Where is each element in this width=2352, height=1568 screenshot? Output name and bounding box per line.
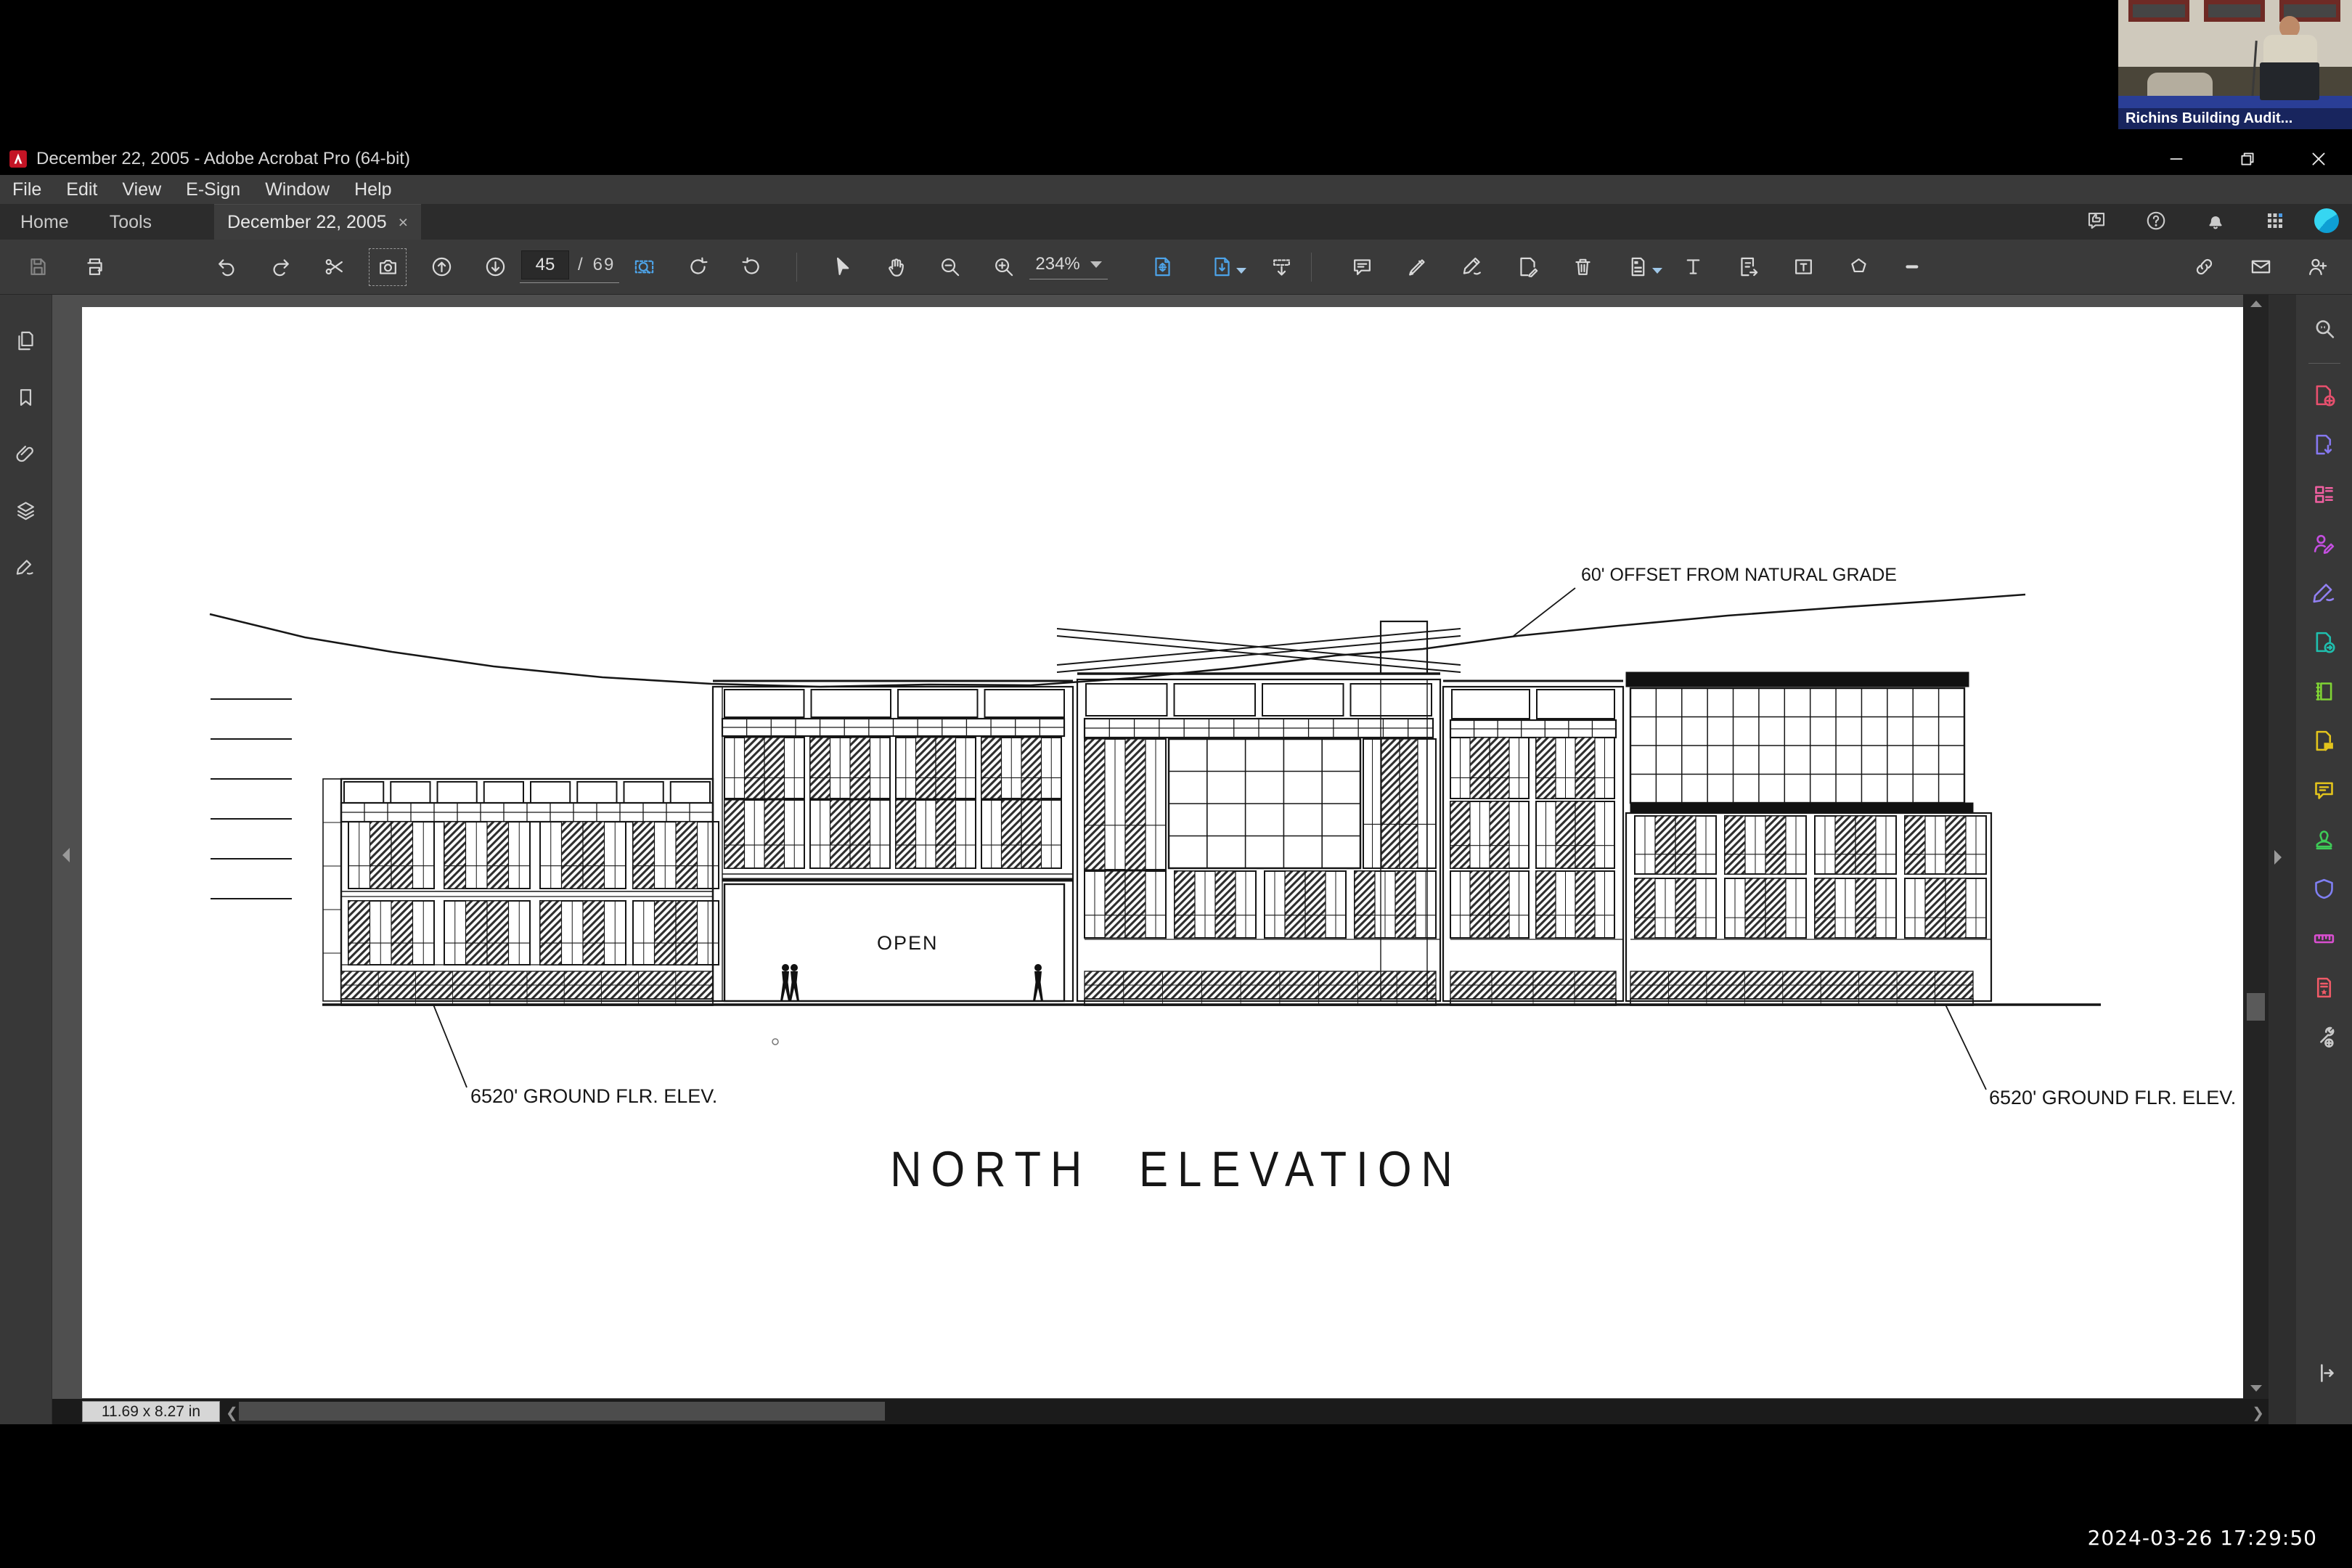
minimize-icon — [2167, 150, 2186, 168]
content-area: 60' OFFSET FROM NATURAL GRADE 6520' GROU… — [0, 295, 2352, 1424]
tab-document[interactable]: December 22, 2005 × — [214, 204, 421, 240]
dropdown-caret-icon — [1652, 268, 1662, 274]
measure-button[interactable] — [2308, 921, 2341, 955]
rotate-left-button[interactable] — [732, 248, 770, 286]
offset-annotation: 60' OFFSET FROM NATURAL GRADE — [1581, 565, 1897, 585]
restore-button[interactable] — [2229, 140, 2266, 178]
send-for-review-icon — [2312, 630, 2336, 654]
edit-text-button[interactable] — [1730, 248, 1768, 286]
tab-home[interactable]: Home — [0, 205, 89, 240]
add-user-icon — [2306, 256, 2329, 278]
print-icon — [83, 256, 106, 278]
add-user-button[interactable] — [2298, 248, 2336, 286]
right-panel-edge — [2269, 295, 2295, 1424]
tab-document-label: December 22, 2005 — [227, 212, 387, 233]
link-icon — [2193, 256, 2216, 278]
status-bar: 11.69 x 8.27 in ❮ ❯ — [52, 1399, 2269, 1424]
help-button[interactable] — [2137, 202, 2175, 240]
right-panel-collapse-handle[interactable] — [2274, 850, 2282, 865]
attachments-button[interactable] — [9, 437, 43, 470]
menu-item-edit[interactable]: Edit — [54, 179, 110, 200]
stamp-icon — [2312, 828, 2336, 852]
chair — [2147, 73, 2213, 97]
create-pdf-icon — [1211, 256, 1233, 278]
zoom-level: 234% — [1035, 254, 1079, 274]
zoom-caret-icon[interactable] — [1090, 261, 1102, 268]
page-number-input[interactable]: 45 — [521, 250, 569, 279]
elevation-drawing: 60' OFFSET FROM NATURAL GRADE 6520' GROU… — [82, 307, 2243, 1398]
tab-bar: Home Tools December 22, 2005 × — [0, 205, 2352, 240]
text-box-button[interactable] — [1785, 248, 1823, 286]
close-button[interactable] — [2300, 140, 2337, 178]
sign-button[interactable] — [1454, 248, 1492, 286]
edit-page-icon — [1516, 256, 1539, 278]
layers-button[interactable] — [9, 494, 43, 527]
document-pane: 60' OFFSET FROM NATURAL GRADE 6520' GROU… — [52, 295, 2243, 1399]
export-pdf-button[interactable] — [1144, 248, 1182, 286]
protect-button[interactable] — [2308, 872, 2341, 905]
search-document-icon — [2312, 317, 2336, 341]
drawing-title: NORTH ELEVATION — [890, 1140, 1462, 1197]
stamp-button[interactable] — [2308, 822, 2341, 856]
organize-pages-button[interactable] — [2308, 477, 2341, 510]
minimize-button[interactable] — [2157, 140, 2195, 178]
menu-item-view[interactable]: View — [110, 179, 173, 200]
zoom-in-button[interactable] — [984, 248, 1022, 286]
comment-tool-icon — [2312, 778, 2336, 802]
rotate-right-button[interactable] — [679, 248, 716, 286]
highlight-icon — [1406, 256, 1429, 278]
open-pane-icon — [2313, 1361, 2337, 1385]
page-thumbnails-icon — [15, 330, 37, 352]
left-panel-bar — [0, 295, 52, 1424]
camera-button[interactable] — [369, 248, 407, 286]
delete-pages-button[interactable] — [1564, 248, 1602, 286]
document-column: 60' OFFSET FROM NATURAL GRADE 6520' GROU… — [52, 295, 2269, 1424]
create-pdf-tool-button[interactable] — [2308, 378, 2341, 412]
comment-doc-icon — [2312, 729, 2336, 753]
comment-button[interactable] — [1344, 248, 1381, 286]
select-icon — [831, 256, 854, 278]
tab-tools[interactable]: Tools — [89, 205, 172, 240]
search-document-button[interactable] — [2308, 312, 2341, 346]
zoom-out-button[interactable] — [931, 248, 968, 286]
snapshot-icon — [323, 256, 346, 278]
sign-icon — [1461, 256, 1484, 278]
save-button[interactable] — [19, 248, 57, 286]
title-bar: December 22, 2005 - Adobe Acrobat Pro (6… — [0, 143, 2352, 175]
polygon-icon — [1847, 256, 1870, 278]
save-icon — [27, 256, 49, 278]
line-button[interactable] — [1895, 248, 1933, 286]
left-panel-collapse-handle[interactable] — [62, 848, 70, 862]
acrobat-window: December 22, 2005 - Adobe Acrobat Pro (6… — [0, 143, 2352, 1424]
zoom-control[interactable]: 234% — [1029, 254, 1107, 279]
rotate-right-icon — [687, 256, 709, 278]
comment-tool-button[interactable] — [2308, 773, 2341, 807]
comment-icon — [1351, 256, 1373, 278]
create-pdf-button[interactable] — [1204, 248, 1241, 286]
scroll-left-arrow[interactable]: ❮ — [226, 1404, 238, 1422]
export-pdf-tool-icon — [2312, 433, 2336, 457]
ground-elev-left: 6520' GROUND FLR. ELEV. — [470, 1085, 717, 1107]
toolbar-download-button[interactable] — [1263, 248, 1301, 286]
page-up-icon — [430, 256, 453, 278]
webcam-name-label: Richins Building Audit... — [2118, 108, 2352, 129]
pdf-page: 60' OFFSET FROM NATURAL GRADE 6520' GROU… — [82, 307, 2243, 1398]
hand-button[interactable] — [877, 248, 915, 286]
page-thumbnails-button[interactable] — [9, 324, 43, 357]
toolbar-separator — [1311, 253, 1312, 282]
help-icon — [2145, 210, 2167, 232]
toolbar-separator — [796, 253, 797, 282]
toolbar: 45 / 69 234% — [0, 240, 2352, 295]
add-text-icon — [1682, 256, 1704, 278]
page-total: 69 — [593, 255, 616, 275]
more-tools-icon — [2312, 1025, 2336, 1049]
signatures-icon — [15, 556, 37, 579]
export-pdf-icon — [1151, 256, 1174, 278]
recording-timestamp: 2024-03-26 17:29:50 — [2088, 1526, 2317, 1550]
vertical-scrollbar[interactable] — [2243, 295, 2269, 1399]
scroll-down-arrow[interactable] — [2250, 1385, 2262, 1392]
page-down-icon — [484, 256, 507, 278]
fill-sign-button[interactable] — [2308, 576, 2341, 609]
protect-icon — [2312, 877, 2336, 901]
scan-ocr-icon — [2312, 679, 2336, 703]
scroll-up-arrow[interactable] — [2250, 301, 2262, 307]
signatures-button[interactable] — [9, 550, 43, 584]
bookmarks-button[interactable] — [9, 380, 43, 414]
zoom-in-icon — [992, 256, 1015, 278]
select-button[interactable] — [823, 248, 861, 286]
laptop — [2260, 62, 2319, 100]
line-icon — [1903, 256, 1925, 278]
email-button[interactable] — [2242, 248, 2279, 286]
scan-ocr-button[interactable] — [2308, 674, 2341, 708]
notifications-button[interactable] — [2197, 202, 2234, 240]
page-template-button[interactable] — [1620, 248, 1657, 286]
ground-elev-right: 6520' GROUND FLR. ELEV. — [1989, 1087, 2236, 1108]
page-down-button[interactable] — [476, 248, 514, 286]
pdf-standards-button[interactable] — [2308, 971, 2341, 1004]
bookmarks-icon — [15, 386, 37, 409]
polygon-button[interactable] — [1840, 248, 1878, 286]
open-pane-button[interactable] — [2308, 1356, 2341, 1389]
rotate-left-icon — [740, 256, 763, 278]
horizontal-scrollbar[interactable]: ❮ ❯ — [224, 1399, 2269, 1424]
highlight-button[interactable] — [1399, 248, 1437, 286]
right-tools-bar — [2295, 295, 2352, 1424]
app-grid-icon — [2264, 210, 2286, 232]
measure-icon — [2312, 926, 2336, 950]
more-tools-button[interactable] — [2308, 1020, 2341, 1053]
menu-item-file[interactable]: File — [0, 179, 54, 200]
edit-text-icon — [1737, 256, 1760, 278]
redo-icon — [269, 256, 292, 278]
fill-sign-icon — [2312, 581, 2336, 605]
account-avatar[interactable] — [2314, 208, 2339, 233]
window-title: December 22, 2005 - Adobe Acrobat Pro (6… — [36, 149, 410, 169]
share-feedback-button[interactable] — [2078, 202, 2115, 240]
horizontal-scroll-thumb[interactable] — [239, 1402, 885, 1421]
undo-button[interactable] — [208, 248, 245, 286]
request-signatures-button[interactable] — [2308, 526, 2341, 560]
scroll-right-arrow[interactable]: ❯ — [2252, 1404, 2264, 1422]
webcam-overlay: Richins Building Audit... — [2118, 0, 2352, 129]
print-button[interactable] — [75, 248, 113, 286]
room-window — [2128, 0, 2189, 22]
add-text-button[interactable] — [1675, 248, 1712, 286]
request-signatures-icon — [2312, 531, 2336, 555]
edit-page-button[interactable] — [1509, 248, 1547, 286]
hand-icon — [885, 256, 907, 278]
send-for-review-button[interactable] — [2308, 625, 2341, 658]
zoom-out-icon — [939, 256, 961, 278]
tools-divider — [2308, 363, 2340, 364]
email-icon — [2250, 256, 2272, 278]
marquee-zoom-icon — [633, 256, 656, 278]
tab-close-icon[interactable]: × — [399, 213, 408, 232]
room-window — [2204, 0, 2265, 22]
organize-pages-icon — [2312, 482, 2336, 506]
comment-doc-button[interactable] — [2308, 724, 2341, 757]
vertical-scroll-thumb[interactable] — [2247, 993, 2265, 1021]
link-button[interactable] — [2185, 248, 2223, 286]
restore-icon — [2238, 150, 2257, 168]
acrobat-logo-icon — [9, 150, 28, 168]
close-icon — [2309, 150, 2328, 168]
pdf-standards-icon — [2312, 976, 2336, 1000]
open-label: OPEN — [877, 932, 939, 954]
export-pdf-tool-button[interactable] — [2308, 428, 2341, 461]
page-dimensions: 11.69 x 8.27 in — [82, 1401, 220, 1422]
page-navigation: 45 / 69 — [520, 250, 619, 283]
text-box-icon — [1792, 256, 1815, 278]
delete-pages-icon — [1572, 256, 1594, 278]
page-template-icon — [1627, 256, 1649, 278]
layers-icon — [15, 499, 37, 522]
screen: December 22, 2005 - Adobe Acrobat Pro (6… — [0, 0, 2352, 1568]
undo-icon — [216, 256, 238, 278]
snapshot-button[interactable] — [315, 248, 353, 286]
camera-icon — [377, 256, 399, 278]
app-grid-button[interactable] — [2256, 202, 2294, 240]
redo-button[interactable] — [261, 248, 299, 286]
marquee-zoom-button[interactable] — [625, 248, 663, 286]
menu-item-help[interactable]: Help — [342, 179, 404, 200]
toolbar-download-icon — [1270, 256, 1293, 278]
create-pdf-tool-icon — [2312, 383, 2336, 407]
share-feedback-icon — [2086, 210, 2107, 232]
notifications-icon — [2205, 210, 2226, 232]
dropdown-caret-icon — [1236, 268, 1246, 274]
tabbar-quick-icons — [2078, 202, 2339, 240]
menu-bar: FileEditViewE-SignWindowHelp — [0, 175, 2352, 205]
attachments-icon — [15, 443, 37, 465]
menu-item-window[interactable]: Window — [253, 179, 342, 200]
page-separator: / — [578, 255, 584, 275]
window-controls — [2157, 140, 2337, 178]
page-up-button[interactable] — [422, 248, 460, 286]
menu-item-esign[interactable]: E-Sign — [173, 179, 253, 200]
